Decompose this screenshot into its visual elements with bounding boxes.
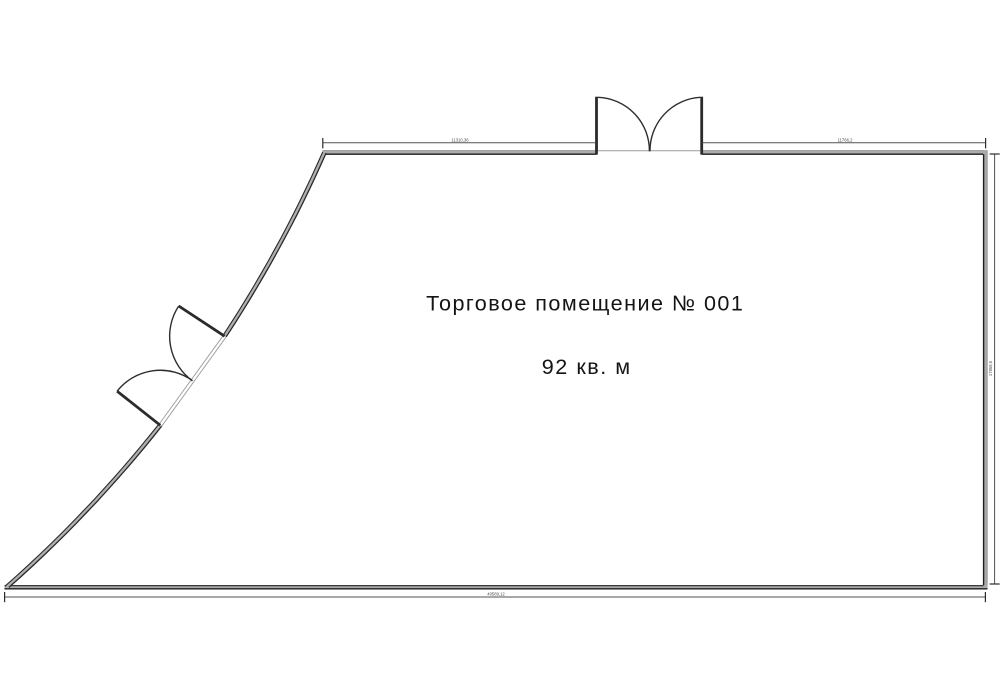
svg-text:92 кв. м: 92 кв. м <box>542 354 632 379</box>
svg-text:11310,36: 11310,36 <box>451 137 469 142</box>
svg-text:17858,6: 17858,6 <box>988 360 993 376</box>
svg-text:Торговое помещение № 001: Торговое помещение № 001 <box>426 291 744 316</box>
svg-text:40589,12: 40589,12 <box>487 591 505 596</box>
svg-text:11766,2: 11766,2 <box>838 137 853 142</box>
